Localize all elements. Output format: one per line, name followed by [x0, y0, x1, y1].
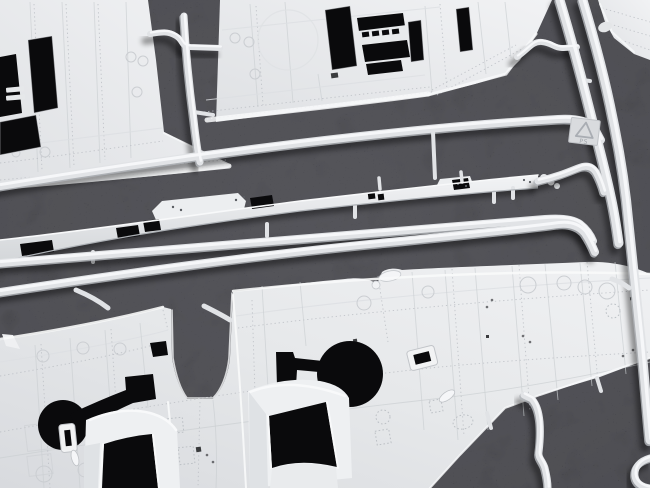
sprue-photo-canvas: PS: [0, 0, 650, 488]
sprue-photo: PS: [0, 0, 650, 488]
fairing-floor: [270, 464, 338, 488]
left-radiator-fairing: [84, 410, 180, 488]
material-marking-text: PS: [579, 138, 588, 146]
right-radiator-fairing: [248, 380, 352, 488]
slot-fixture-left: [59, 423, 78, 453]
recycling-code-tab: PS: [568, 117, 600, 147]
gate-spar: [433, 132, 435, 178]
flare-chute-cutout: [150, 341, 168, 357]
leading-edge-bump: [372, 281, 380, 289]
fairing-wall: [84, 443, 100, 488]
